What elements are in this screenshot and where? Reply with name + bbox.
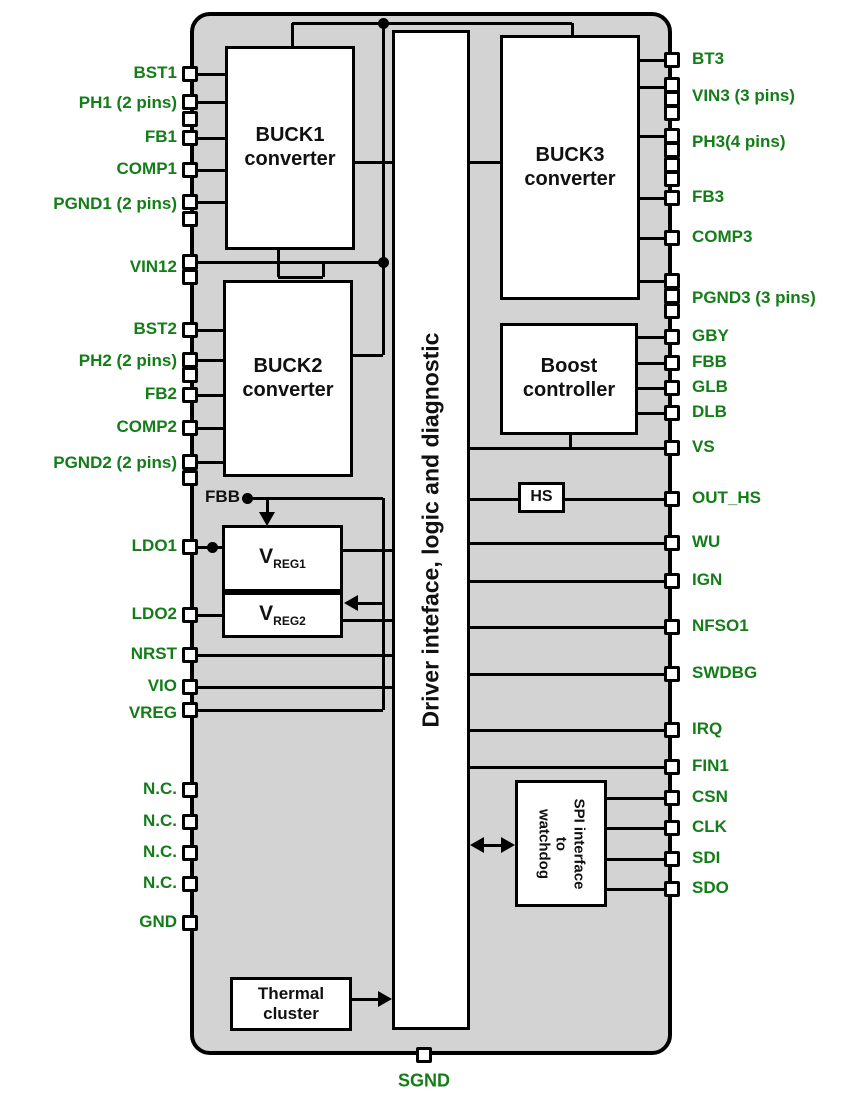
- wire: [607, 888, 665, 891]
- pin-label-fb3: FB3: [692, 187, 724, 207]
- pin-box: [182, 322, 198, 338]
- pin-label-vio: VIO: [148, 676, 177, 696]
- pin-box: [182, 420, 198, 436]
- arrowhead-down: [259, 512, 275, 526]
- pin-box: [416, 1047, 432, 1063]
- wire: [197, 709, 383, 712]
- pin-label-comp3: COMP3: [692, 227, 752, 247]
- pin-box: [664, 52, 680, 68]
- pin-label-clk: CLK: [692, 817, 727, 837]
- pin-box: [664, 230, 680, 246]
- wire: [569, 435, 572, 448]
- wire: [470, 766, 665, 769]
- pin-label-n-c-: N.C.: [143, 779, 177, 799]
- pin-box: [664, 491, 680, 507]
- pin-label-ph1-2-pins-: PH1 (2 pins): [79, 93, 177, 113]
- block-boost-label: Boostcontroller: [523, 355, 615, 402]
- wire: [470, 542, 665, 545]
- pin-label-vin12: VIN12: [130, 257, 177, 277]
- block-vreg1: VREG1: [222, 525, 343, 592]
- pin-box: [664, 288, 680, 304]
- pin-box: [664, 142, 680, 158]
- pin-label-fb1: FB1: [145, 127, 177, 147]
- pin-box: [182, 162, 198, 178]
- wire: [640, 280, 665, 283]
- pin-box: [664, 666, 680, 682]
- block-hs: HS: [518, 482, 565, 513]
- wire: [343, 619, 392, 622]
- block-buck3: BUCK3converter: [500, 35, 640, 300]
- wire: [197, 394, 223, 397]
- block-buck1: BUCK1converter: [225, 46, 355, 250]
- pin-label-bst1: BST1: [134, 63, 177, 83]
- pin-box: [182, 915, 198, 931]
- pin-box: [182, 111, 198, 127]
- pin-box: [182, 814, 198, 830]
- junction-dot: [207, 542, 218, 553]
- wire: [382, 23, 385, 355]
- block-buck2: BUCK2converter: [223, 280, 353, 477]
- wire: [470, 498, 518, 501]
- pin-label-vin3-3-pins-: VIN3 (3 pins): [692, 86, 795, 106]
- block-vreg1-label: VREG1: [259, 545, 306, 571]
- pin-label-vs: VS: [692, 437, 715, 457]
- wire: [640, 59, 665, 62]
- pin-box: [182, 647, 198, 663]
- wire: [197, 359, 223, 362]
- pin-box: [182, 845, 198, 861]
- pin-box: [664, 405, 680, 421]
- pin-box: [182, 254, 198, 270]
- pin-label-comp1: COMP1: [117, 159, 177, 179]
- pin-box: [664, 820, 680, 836]
- pin-box: [182, 470, 198, 486]
- wire: [607, 827, 665, 830]
- pin-box: [182, 702, 198, 718]
- wire: [197, 201, 225, 204]
- wire: [197, 73, 225, 76]
- wire: [470, 580, 665, 583]
- pin-box: [664, 573, 680, 589]
- pin-label-nrst: NRST: [131, 644, 177, 664]
- wire: [607, 858, 665, 861]
- pin-box: [664, 171, 680, 187]
- pin-box: [182, 367, 198, 383]
- junction-dot: [378, 257, 389, 268]
- inner-label-fbb: FBB: [205, 487, 240, 507]
- arrowhead-left: [470, 837, 484, 853]
- pin-label-fbb: FBB: [692, 352, 727, 372]
- wire: [470, 447, 665, 450]
- block-buck1-label: BUCK1converter: [244, 124, 335, 171]
- wire: [197, 169, 225, 172]
- block-buck2-label: BUCK2converter: [242, 355, 333, 402]
- wire: [640, 86, 665, 89]
- pin-box: [664, 380, 680, 396]
- wire: [197, 101, 225, 104]
- pin-box: [182, 387, 198, 403]
- block-hs-label: HS: [530, 488, 552, 507]
- pin-label-n-c-: N.C.: [143, 811, 177, 831]
- pin-label-pgnd3-3-pins-: PGND3 (3 pins): [692, 288, 816, 308]
- arrowhead-right: [501, 837, 515, 853]
- pin-label-sdo: SDO: [692, 878, 729, 898]
- wire: [565, 498, 665, 501]
- wire: [292, 22, 572, 25]
- wire: [571, 23, 574, 35]
- pin-box: [182, 782, 198, 798]
- wire: [640, 135, 665, 138]
- pin-label-csn: CSN: [692, 787, 728, 807]
- pin-box: [664, 790, 680, 806]
- block-thermal: Thermalcluster: [230, 977, 352, 1031]
- pin-box: [664, 329, 680, 345]
- pin-box: [182, 679, 198, 695]
- wire: [470, 161, 500, 164]
- pin-label-pgnd2-2-pins-: PGND2 (2 pins): [53, 453, 177, 473]
- pin-label-n-c-: N.C.: [143, 842, 177, 862]
- pin-label-gby: GBY: [692, 326, 729, 346]
- pin-label-sgnd: SGND: [398, 1070, 450, 1091]
- pin-label-comp2: COMP2: [117, 417, 177, 437]
- pin-label-bt3: BT3: [692, 49, 724, 69]
- pin-label-ldo2: LDO2: [132, 604, 177, 624]
- wire: [470, 673, 665, 676]
- arrowhead-right: [378, 991, 392, 1007]
- pin-label-sdi: SDI: [692, 848, 720, 868]
- pin-label-vreg: VREG: [129, 703, 177, 723]
- wire: [291, 23, 294, 46]
- pin-box: [182, 876, 198, 892]
- pin-box: [182, 352, 198, 368]
- wire: [197, 654, 392, 657]
- pin-box: [664, 190, 680, 206]
- pin-label-ldo1: LDO1: [132, 536, 177, 556]
- wire: [343, 549, 392, 552]
- wire: [197, 427, 223, 430]
- wire: [197, 329, 223, 332]
- block-vreg2: VREG2: [222, 592, 343, 638]
- pin-box: [664, 535, 680, 551]
- block-spi: SPI interfacetowatchdog: [515, 780, 607, 907]
- pin-label-wu: WU: [692, 532, 720, 552]
- diagram-canvas: BUCK1converterBUCK2converterBUCK3convert…: [0, 0, 860, 1100]
- junction-dot: [242, 493, 253, 504]
- block-buck3-label: BUCK3converter: [524, 144, 615, 191]
- block-thermal-label: Thermalcluster: [258, 984, 324, 1024]
- pin-box: [664, 355, 680, 371]
- block-driver: Driver inteface, logic and diagnostic: [392, 30, 470, 1030]
- wire: [470, 729, 665, 732]
- pin-box: [182, 269, 198, 285]
- wire: [197, 137, 225, 140]
- wire: [640, 197, 665, 200]
- pin-label-swdbg: SWDBG: [692, 663, 757, 683]
- pin-label-gnd: GND: [139, 912, 177, 932]
- pin-label-ph2-2-pins-: PH2 (2 pins): [79, 351, 177, 371]
- wire: [355, 161, 392, 164]
- wire: [638, 412, 665, 415]
- pin-box: [664, 273, 680, 289]
- pin-box: [182, 130, 198, 146]
- wire: [197, 261, 383, 264]
- pin-box: [182, 211, 198, 227]
- pin-box: [664, 851, 680, 867]
- pin-box: [664, 303, 680, 319]
- block-boost: Boostcontroller: [500, 323, 638, 435]
- pin-box: [182, 607, 198, 623]
- wire: [197, 461, 223, 464]
- pin-box: [182, 66, 198, 82]
- pin-label-n-c-: N.C.: [143, 873, 177, 893]
- pin-box: [182, 539, 198, 555]
- pin-box: [664, 440, 680, 456]
- block-spi-label: SPI interfacetowatchdog: [534, 798, 587, 889]
- wire: [197, 686, 392, 689]
- pin-label-irq: IRQ: [692, 719, 722, 739]
- arrowhead-left: [344, 595, 358, 611]
- pin-box: [182, 454, 198, 470]
- junction-dot: [378, 18, 389, 29]
- pin-label-pgnd1-2-pins-: PGND1 (2 pins): [53, 194, 177, 214]
- wire: [197, 614, 222, 617]
- pin-label-dlb: DLB: [692, 402, 727, 422]
- wire: [638, 362, 665, 365]
- pin-label-nfso1: NFSO1: [692, 616, 749, 636]
- pin-label-fb2: FB2: [145, 384, 177, 404]
- wire: [640, 237, 665, 240]
- wire: [278, 276, 323, 279]
- pin-label-out-hs: OUT_HS: [692, 488, 761, 508]
- pin-box: [664, 722, 680, 738]
- pin-box: [182, 194, 198, 210]
- pin-box: [664, 759, 680, 775]
- pin-box: [664, 619, 680, 635]
- pin-label-fin1: FIN1: [692, 756, 729, 776]
- wire: [470, 626, 665, 629]
- wire: [353, 354, 383, 357]
- block-vreg2-label: VREG2: [259, 602, 306, 628]
- pin-label-ign: IGN: [692, 570, 722, 590]
- pin-box: [182, 94, 198, 110]
- pin-box: [664, 881, 680, 897]
- pin-label-ph3-4-pins-: PH3(4 pins): [692, 132, 786, 152]
- pin-label-bst2: BST2: [134, 319, 177, 339]
- wire: [638, 336, 665, 339]
- pin-label-glb: GLB: [692, 377, 728, 397]
- wire: [638, 387, 665, 390]
- wire: [607, 797, 665, 800]
- pin-box: [664, 105, 680, 121]
- block-driver-label: Driver inteface, logic and diagnostic: [417, 333, 444, 728]
- wire: [277, 250, 280, 277]
- wire: [322, 262, 325, 277]
